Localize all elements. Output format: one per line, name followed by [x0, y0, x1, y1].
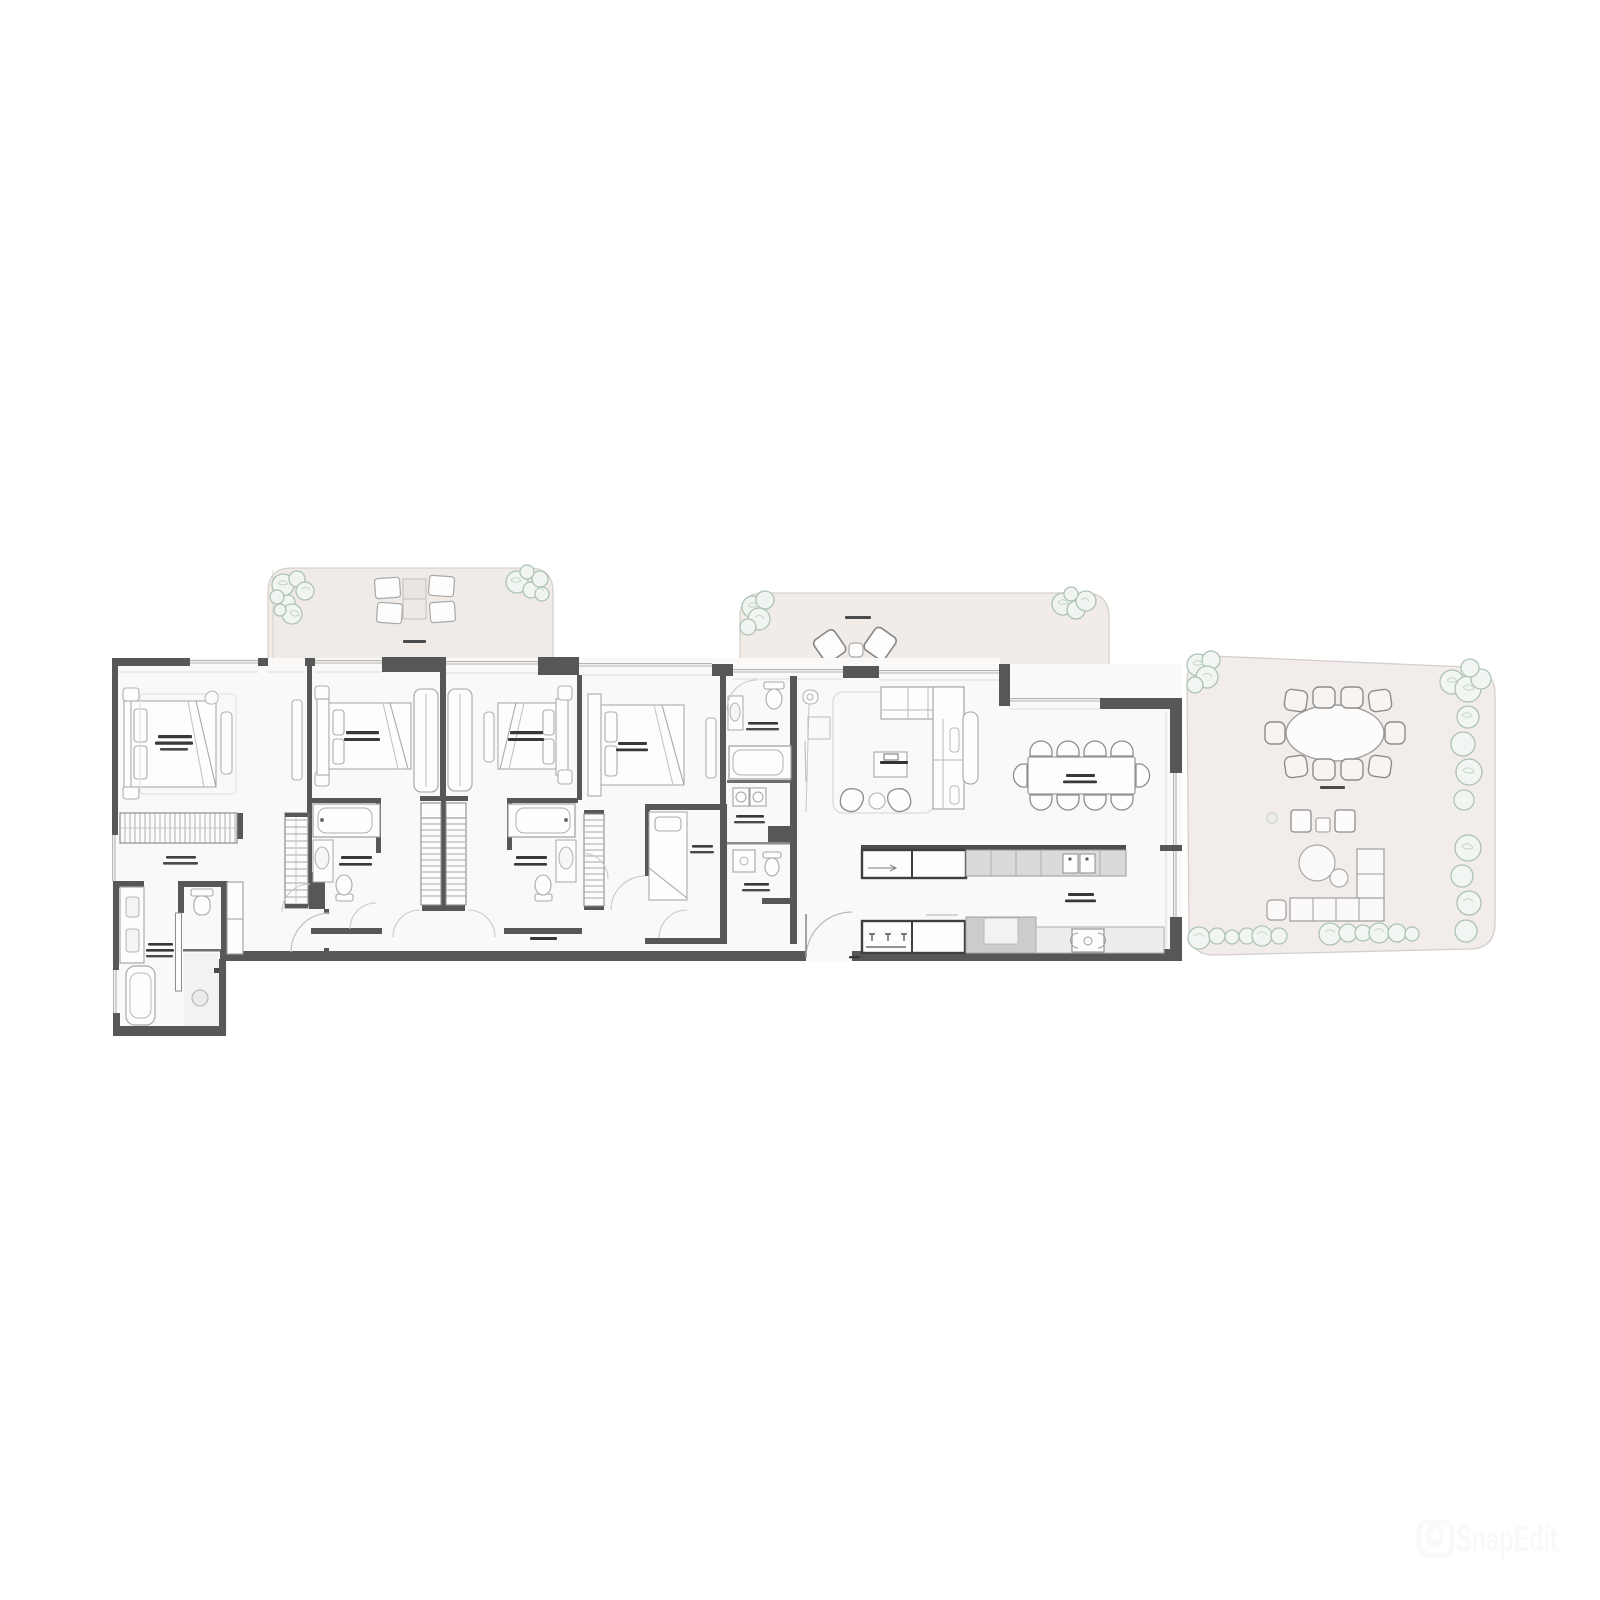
svg-text:SnapEdit: SnapEdit	[1456, 1518, 1558, 1559]
